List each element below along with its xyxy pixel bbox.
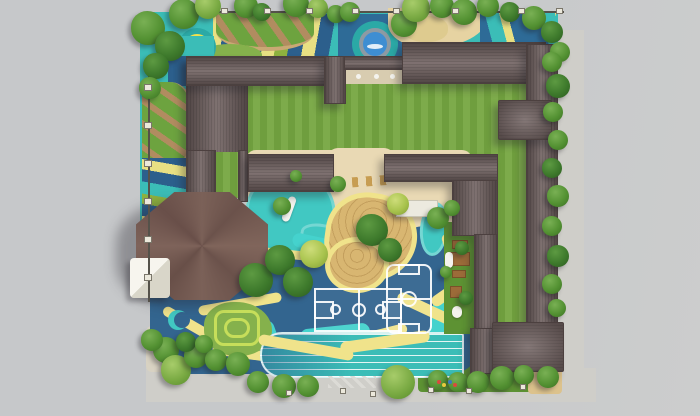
- play-item: [453, 383, 457, 387]
- tree: [440, 266, 452, 278]
- tree: [141, 329, 163, 351]
- play-item: [448, 380, 452, 384]
- tree: [387, 193, 409, 215]
- tree: [205, 349, 227, 371]
- fence-post: [370, 391, 376, 397]
- tree: [283, 267, 313, 297]
- tree: [542, 216, 562, 236]
- tree: [290, 170, 302, 182]
- fence-post: [393, 8, 400, 14]
- tree: [542, 274, 562, 294]
- fence-post: [144, 236, 152, 243]
- site-plan-rendering: [0, 0, 700, 416]
- fence-post: [556, 8, 563, 14]
- tree: [381, 365, 415, 399]
- tree: [490, 366, 514, 390]
- tree: [514, 365, 534, 385]
- tree: [143, 53, 169, 79]
- fence-post: [144, 274, 152, 281]
- tree: [195, 335, 213, 353]
- tree: [226, 352, 250, 376]
- fence-post: [340, 388, 346, 394]
- play-item: [437, 380, 441, 384]
- tree: [542, 52, 562, 72]
- tree: [444, 200, 460, 216]
- tree: [247, 371, 269, 393]
- tree: [273, 197, 291, 215]
- fence-post: [352, 8, 359, 14]
- fence-post: [144, 198, 152, 205]
- tree: [548, 299, 566, 317]
- fence-post: [306, 8, 313, 14]
- fence-post: [286, 390, 292, 396]
- tree: [542, 158, 562, 178]
- tree: [541, 21, 563, 43]
- fence-post: [520, 384, 526, 390]
- tree: [195, 0, 221, 19]
- tree: [548, 130, 568, 150]
- tree: [543, 102, 563, 122]
- tree: [537, 366, 559, 388]
- generated-scenery: [0, 0, 700, 416]
- tree: [297, 375, 319, 397]
- tree: [547, 185, 569, 207]
- tree: [500, 2, 520, 22]
- tree: [272, 374, 296, 398]
- tree: [546, 74, 570, 98]
- fence-post: [264, 8, 271, 14]
- tree: [455, 241, 469, 255]
- tree: [378, 238, 402, 262]
- fence-post: [144, 160, 152, 167]
- tree: [300, 240, 328, 268]
- play-item: [442, 383, 446, 387]
- fence-post: [221, 8, 228, 14]
- fence-post: [518, 8, 525, 14]
- tree: [330, 176, 346, 192]
- fence-post: [428, 387, 434, 393]
- tree: [176, 332, 196, 352]
- fence-post: [144, 84, 152, 91]
- tree: [547, 245, 569, 267]
- tree: [477, 0, 499, 17]
- fence-post: [466, 388, 472, 394]
- tree: [459, 291, 473, 305]
- fence-post: [144, 122, 152, 129]
- fence-post: [452, 8, 459, 14]
- tree: [402, 0, 430, 22]
